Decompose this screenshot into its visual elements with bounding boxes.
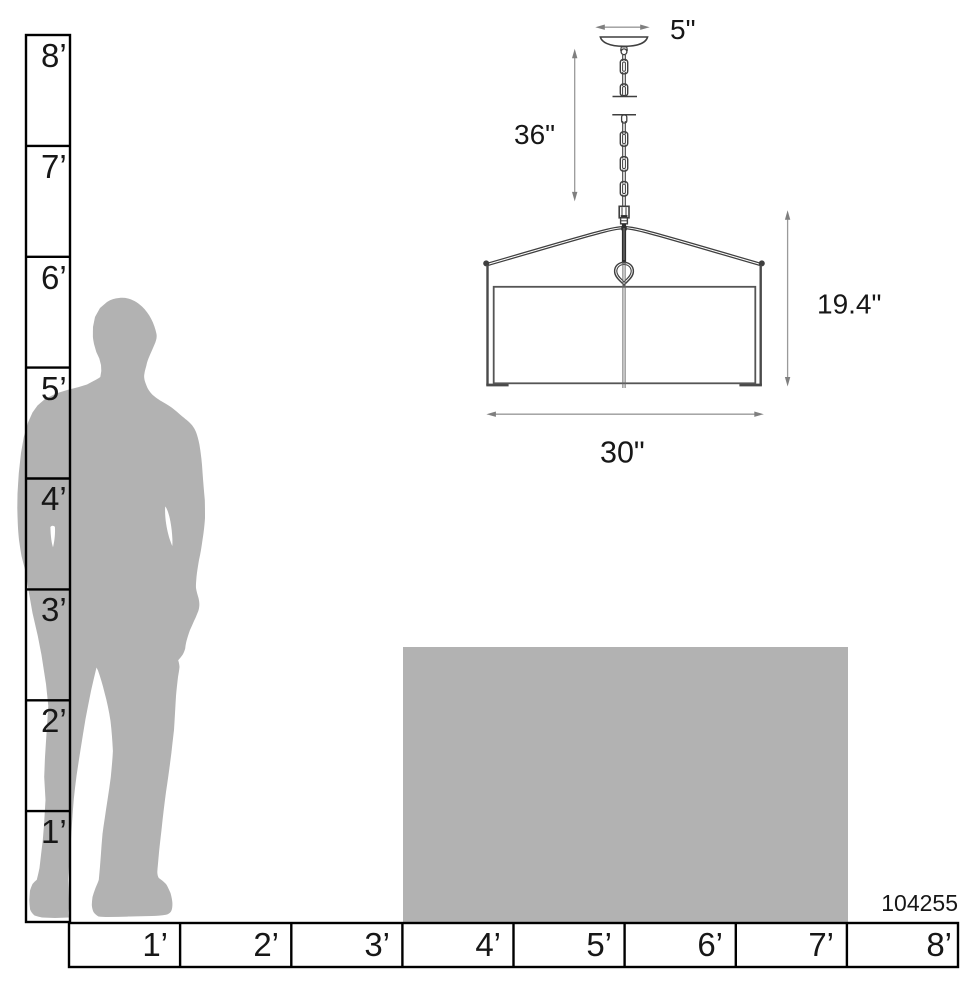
svg-text:2’: 2’ <box>253 926 279 963</box>
svg-text:30": 30" <box>600 436 645 470</box>
svg-text:1’: 1’ <box>142 926 168 963</box>
svg-text:1’: 1’ <box>41 813 67 850</box>
svg-text:7’: 7’ <box>808 926 834 963</box>
svg-text:36": 36" <box>514 119 555 150</box>
svg-text:3’: 3’ <box>41 591 67 628</box>
svg-text:104255: 104255 <box>881 890 958 916</box>
svg-text:19.4": 19.4" <box>817 289 881 320</box>
svg-text:8’: 8’ <box>926 926 952 963</box>
svg-text:8’: 8’ <box>41 37 67 74</box>
svg-text:3’: 3’ <box>364 926 390 963</box>
svg-text:5": 5" <box>670 14 696 45</box>
svg-text:4’: 4’ <box>41 480 67 517</box>
svg-text:5’: 5’ <box>586 926 612 963</box>
svg-text:6’: 6’ <box>41 259 67 296</box>
svg-text:4’: 4’ <box>475 926 501 963</box>
svg-text:2’: 2’ <box>41 702 67 739</box>
svg-text:6’: 6’ <box>697 926 723 963</box>
svg-text:5’: 5’ <box>41 370 67 407</box>
svg-text:7’: 7’ <box>41 148 67 185</box>
